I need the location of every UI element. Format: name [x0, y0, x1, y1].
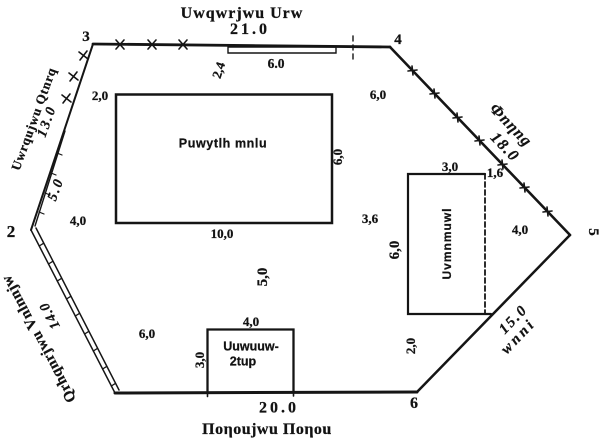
svg-text:20.0: 20.0: [259, 400, 299, 417]
svg-text:2,0: 2,0: [403, 338, 418, 354]
svg-text:6.0: 6.0: [268, 56, 285, 71]
svg-text:3: 3: [82, 29, 90, 45]
svg-text:10,0: 10,0: [211, 226, 234, 241]
svg-text:6,0: 6,0: [370, 87, 386, 102]
svg-text:2: 2: [7, 222, 16, 241]
svg-text:6,0: 6,0: [330, 149, 345, 165]
svg-text:3,0: 3,0: [442, 159, 458, 174]
svg-text:2,0: 2,0: [92, 88, 108, 103]
svg-text:4,0: 4,0: [70, 213, 86, 228]
svg-text:Uuwuuw-: Uuwuuw-: [223, 340, 279, 354]
svg-text:4,0: 4,0: [243, 314, 259, 329]
svg-text:4: 4: [394, 32, 402, 48]
svg-text:1,6: 1,6: [487, 165, 504, 180]
svg-text:3,0: 3,0: [192, 352, 207, 368]
svg-text:6,0: 6,0: [139, 326, 155, 341]
svg-text:21.0: 21.0: [230, 21, 270, 38]
svg-text:Puwytlh mnlu: Puwytlh mnlu: [179, 137, 267, 151]
svg-text:Uvmnmuwl: Uvmnmuwl: [440, 207, 454, 279]
svg-text:4,0: 4,0: [512, 222, 528, 237]
svg-text:2tup: 2tup: [230, 355, 257, 369]
svg-text:6: 6: [410, 395, 418, 412]
svg-text:3,6: 3,6: [362, 211, 379, 226]
svg-text:Uwqwrjwu Urw: Uwqwrjwu Urw: [181, 5, 304, 22]
svg-text:5: 5: [585, 228, 601, 236]
svg-text:6,0: 6,0: [387, 241, 403, 260]
svg-text:Поηоujwu Поηоu: Поηоujwu Поηоu: [202, 421, 332, 438]
svg-text:5,0: 5,0: [255, 268, 271, 287]
